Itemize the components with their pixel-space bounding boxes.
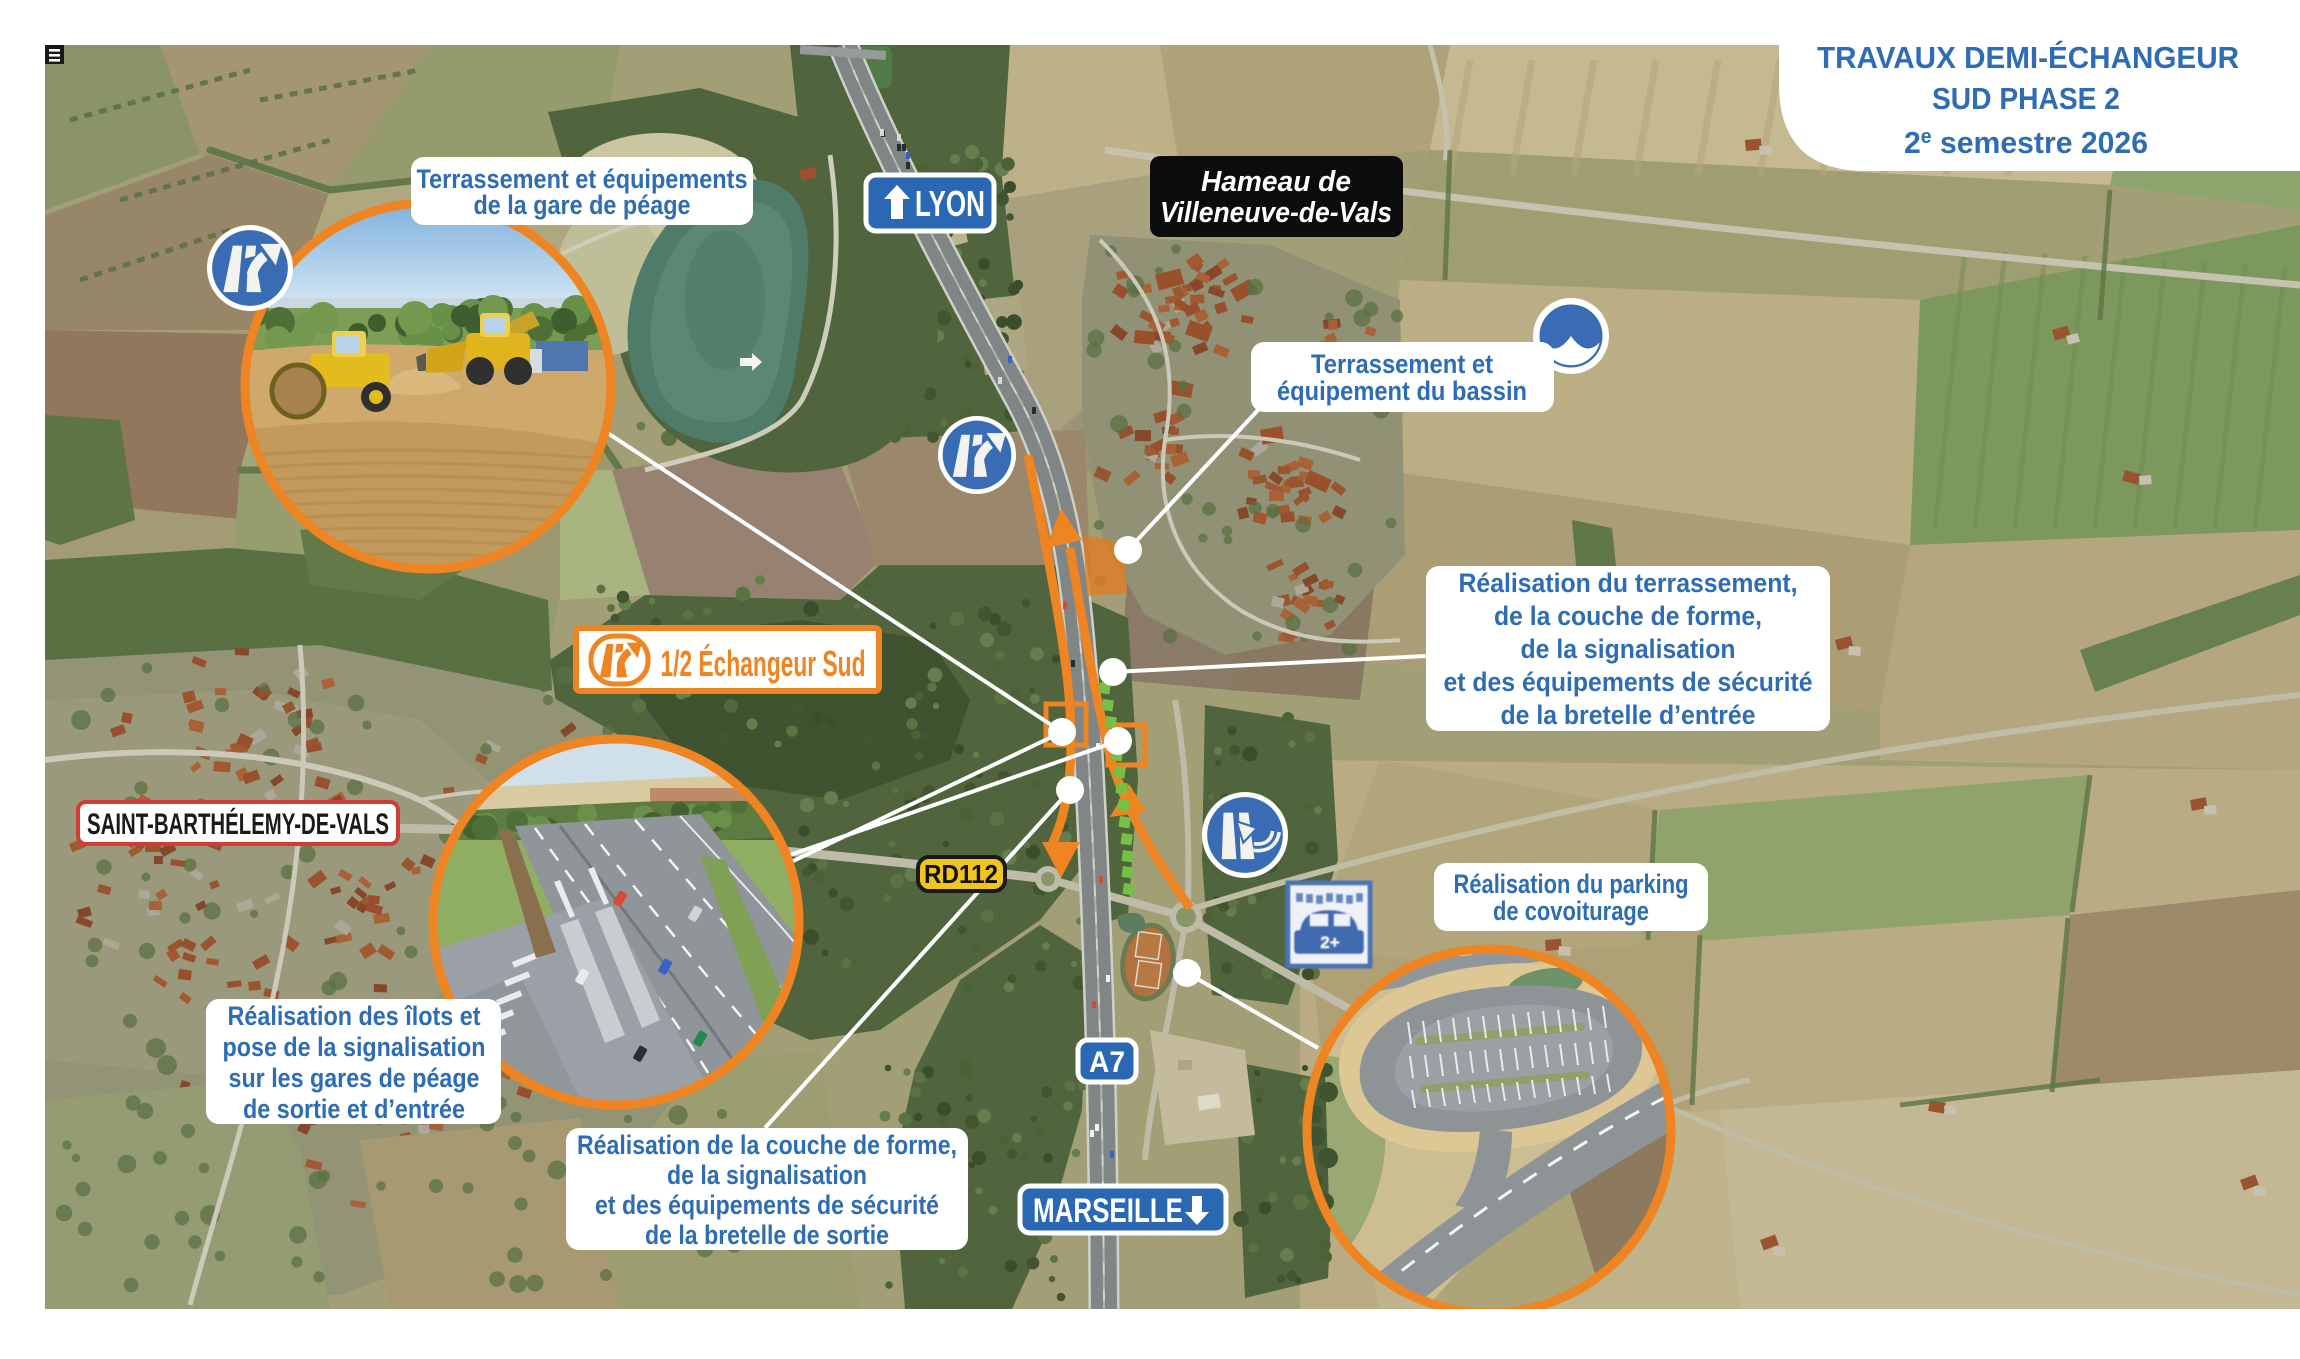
svg-text:Réalisation du terrassement,: Réalisation du terrassement, — [1459, 568, 1798, 598]
svg-text:de la signalisation: de la signalisation — [1521, 634, 1736, 664]
svg-text:de la bretelle d’entrée: de la bretelle d’entrée — [1501, 700, 1756, 730]
svg-text:Réalisation du parking: Réalisation du parking — [1454, 869, 1689, 899]
svg-text:Villeneuve-de-Vals: Villeneuve-de-Vals — [1160, 197, 1392, 229]
svg-text:de la signalisation: de la signalisation — [667, 1160, 867, 1190]
svg-text:Réalisation de la couche de fo: Réalisation de la couche de forme, — [577, 1130, 957, 1160]
svg-text:de la couche de forme,: de la couche de forme, — [1494, 601, 1762, 631]
svg-text:de sortie et d’entrée: de sortie et d’entrée — [243, 1094, 465, 1124]
svg-text:A7: A7 — [1089, 1046, 1125, 1079]
svg-text:RD112: RD112 — [924, 859, 998, 889]
svg-text:1/2 Échangeur Sud: 1/2 Échangeur Sud — [661, 643, 866, 684]
svg-text:équipement du bassin: équipement du bassin — [1277, 376, 1527, 406]
svg-text:SAINT-BARTHÉLEMY-DE-VALS: SAINT-BARTHÉLEMY-DE-VALS — [87, 807, 389, 841]
svg-text:Terrassement et: Terrassement et — [1311, 349, 1493, 379]
svg-text:LYON: LYON — [915, 183, 985, 224]
svg-text:de covoiturage: de covoiturage — [1493, 896, 1649, 926]
svg-text:de la gare de péage: de la gare de péage — [474, 190, 691, 220]
svg-text:SUD PHASE 2: SUD PHASE 2 — [1932, 81, 2120, 116]
svg-text:et des équipements de sécurité: et des équipements de sécurité — [595, 1190, 939, 1220]
svg-text:Hameau de: Hameau de — [1201, 166, 1351, 198]
svg-text:de la bretelle de sortie: de la bretelle de sortie — [645, 1220, 889, 1250]
svg-text:sur les gares de péage: sur les gares de péage — [229, 1063, 480, 1093]
svg-text:pose de la signalisation: pose de la signalisation — [223, 1032, 486, 1062]
svg-text:2+: 2+ — [1320, 933, 1339, 952]
svg-text:et des équipements de sécurité: et des équipements de sécurité — [1444, 667, 1813, 697]
svg-text:Réalisation des îlots et: Réalisation des îlots et — [228, 1001, 481, 1031]
svg-text:MARSEILLE: MARSEILLE — [1033, 1192, 1183, 1230]
svg-text:TRAVAUX DEMI-ÉCHANGEUR: TRAVAUX DEMI-ÉCHANGEUR — [1817, 40, 2239, 75]
svg-text:2e semestre 2026: 2e semestre 2026 — [1904, 125, 2148, 160]
